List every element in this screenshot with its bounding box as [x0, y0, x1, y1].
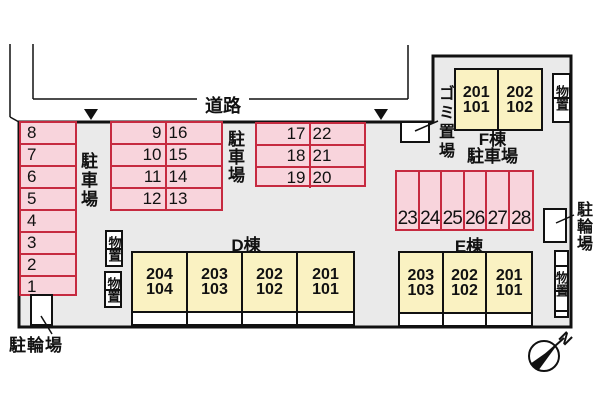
stall-14: 14 [167, 167, 222, 189]
building-e-porch [400, 314, 444, 325]
stall-13: 13 [167, 189, 222, 209]
unit-f-202-102: 202102 [499, 70, 542, 129]
bicycle-parking-label-left: 駐輪場 [9, 331, 63, 356]
bicycle-parking-label-right: 駐輪場 [574, 201, 590, 252]
stall-26: 26 [465, 172, 488, 229]
storage-shed-1: 物置 [105, 230, 123, 267]
stall-22: 22 [311, 124, 365, 146]
stall-28: 28 [510, 172, 533, 229]
parking-lot-label-left: 駐車場 [79, 152, 96, 209]
building-f-parking-label: 駐車場 [455, 148, 530, 166]
storage-shed-f-label: 物置 [555, 85, 568, 111]
parking-stall-row-23-28: 23 24 25 26 27 28 [395, 170, 534, 231]
storage-shed-f: 物置 [552, 73, 571, 123]
stall-24: 24 [420, 172, 443, 229]
storage-shed-e-label: 物置 [555, 271, 568, 297]
building-d: 204104 203103 202102 201101 [131, 251, 355, 326]
storage-shed-2: 物置 [104, 271, 122, 308]
stall-6: 6 [21, 167, 75, 189]
stall-9: 9 [112, 123, 167, 145]
stall-25: 25 [442, 172, 465, 229]
parking-lot-label-mid: 駐車場 [226, 130, 243, 184]
building-f-label: F棟 [455, 131, 530, 148]
bicycle-parking-box-right [543, 208, 567, 243]
stall-2: 2 [21, 255, 75, 277]
road-label: 道路 [197, 96, 249, 116]
unit-e-202-102: 202102 [444, 253, 488, 314]
stall-15: 15 [167, 145, 222, 167]
building-e: 203103 202102 201101 [398, 251, 533, 327]
parking-stall-block-17-22: 17 22 18 21 19 20 [255, 122, 366, 187]
building-f: 201101 202102 [454, 68, 543, 131]
unit-f-201-101: 201101 [456, 70, 499, 129]
unit-d-202-102: 202102 [243, 253, 298, 313]
stall-11: 11 [112, 167, 167, 189]
stall-12: 12 [112, 189, 167, 209]
stall-16: 16 [167, 123, 222, 145]
unit-d-203-103: 203103 [188, 253, 243, 313]
stall-23: 23 [397, 172, 420, 229]
stall-7: 7 [21, 145, 75, 167]
parking-stall-block-9-16: 9 16 10 15 11 14 12 13 [110, 121, 223, 211]
stall-3: 3 [21, 233, 75, 255]
stall-21: 21 [311, 146, 365, 168]
parking-stall-column-left: 8 7 6 5 4 3 2 1 [19, 121, 77, 296]
stall-17: 17 [257, 124, 311, 146]
stall-19: 19 [257, 168, 311, 188]
building-f-caption: F棟 駐車場 [455, 131, 530, 166]
stall-5: 5 [21, 189, 75, 211]
site-plan: 道路 8 7 6 5 4 3 2 1 駐車場 9 16 10 15 11 14 … [0, 0, 600, 400]
storage-shed-2-label: 物置 [107, 277, 120, 303]
storage-shed-e: 物置 [554, 250, 569, 318]
bicycle-parking-box-left [30, 294, 53, 326]
garbage-station-box [400, 121, 430, 143]
stall-18: 18 [257, 146, 311, 168]
unit-d-204-104: 204104 [133, 253, 188, 313]
stall-27: 27 [487, 172, 510, 229]
stall-20: 20 [311, 168, 365, 188]
storage-shed-1-label: 物置 [108, 236, 121, 262]
unit-e-203-103: 203103 [400, 253, 444, 314]
stall-8: 8 [21, 123, 75, 145]
building-d-porch [133, 313, 188, 324]
unit-d-201-101: 201101 [298, 253, 353, 313]
unit-e-201-101: 201101 [487, 253, 531, 314]
stall-4: 4 [21, 211, 75, 233]
garbage-station-label: ゴミ置場 [436, 85, 452, 161]
stall-10: 10 [112, 145, 167, 167]
